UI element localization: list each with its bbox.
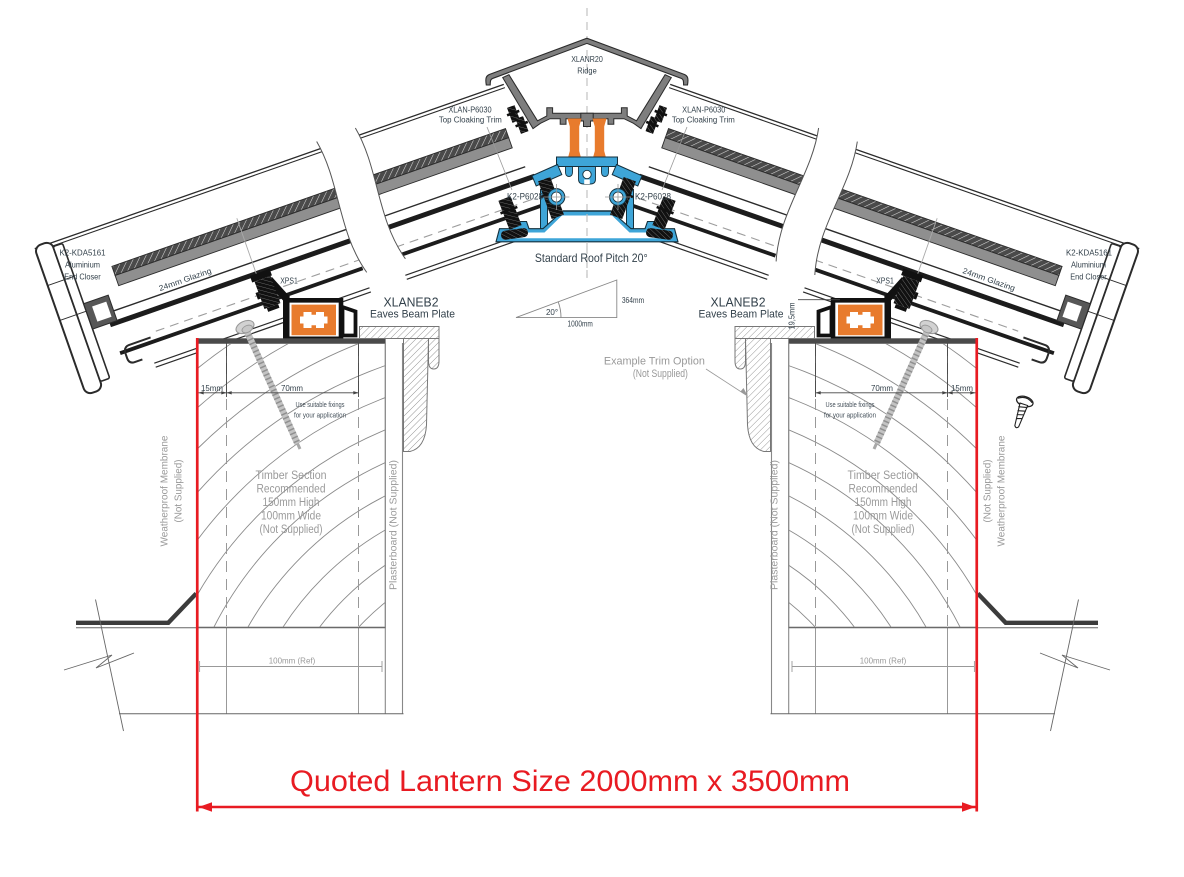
svg-text:100mm Wide: 100mm Wide: [261, 511, 321, 523]
svg-text:Eaves Beam Plate: Eaves Beam Plate: [699, 309, 784, 321]
svg-text:XLAN-P6030: XLAN-P6030: [448, 106, 492, 115]
svg-text:Aluminium: Aluminium: [65, 260, 100, 269]
svg-text:Eaves Beam Plate: Eaves Beam Plate: [370, 309, 455, 321]
svg-text:70mm: 70mm: [871, 384, 893, 393]
svg-text:K2-KDA5161: K2-KDA5161: [60, 248, 107, 257]
svg-text:Example Trim Option: Example Trim Option: [604, 356, 705, 368]
svg-text:Top Cloaking Trim: Top Cloaking Trim: [672, 116, 735, 125]
svg-text:Weatherproof Membrane: Weatherproof Membrane: [159, 435, 171, 546]
svg-text:364mm: 364mm: [622, 296, 645, 305]
svg-text:End Closer: End Closer: [1070, 273, 1107, 282]
svg-text:Aluminium: Aluminium: [1071, 261, 1106, 270]
svg-text:(Not Supplied): (Not Supplied): [852, 524, 915, 536]
svg-text:(Not Supplied): (Not Supplied): [982, 460, 994, 523]
svg-text:K2-P6028: K2-P6028: [635, 191, 671, 201]
svg-text:Recommended: Recommended: [849, 484, 918, 496]
svg-text:150mm High: 150mm High: [855, 497, 912, 509]
svg-text:XLANR20: XLANR20: [571, 55, 603, 64]
svg-text:19,5mm: 19,5mm: [788, 302, 797, 329]
svg-text:XPS1: XPS1: [876, 277, 894, 286]
svg-text:(Not Supplied): (Not Supplied): [260, 524, 323, 536]
svg-text:Timber Section: Timber Section: [848, 470, 919, 482]
svg-text:Quoted Lantern Size 2000mm x 3: Quoted Lantern Size 2000mm x 3500mm: [290, 765, 850, 798]
svg-text:1000mm: 1000mm: [568, 320, 594, 329]
svg-text:70mm: 70mm: [281, 384, 303, 393]
svg-text:(Not Supplied): (Not Supplied): [173, 460, 185, 523]
svg-text:Plasterboard (Not Supplied): Plasterboard (Not Supplied): [769, 460, 781, 590]
svg-text:15mm: 15mm: [951, 384, 973, 393]
svg-text:Timber Section: Timber Section: [256, 470, 327, 482]
svg-text:Ridge: Ridge: [577, 67, 597, 76]
svg-text:Weatherproof Membrane: Weatherproof Membrane: [996, 435, 1008, 546]
svg-text:100mm (Ref): 100mm (Ref): [269, 657, 316, 666]
svg-text:100mm (Ref): 100mm (Ref): [860, 657, 907, 666]
svg-text:20°: 20°: [546, 308, 558, 317]
svg-text:Standard Roof Pitch 20°: Standard Roof Pitch 20°: [535, 251, 648, 265]
svg-text:100mm Wide: 100mm Wide: [853, 511, 913, 523]
svg-text:XLANEB2: XLANEB2: [711, 295, 766, 310]
svg-text:Plasterboard (Not Supplied): Plasterboard (Not Supplied): [388, 460, 400, 590]
svg-text:Recommended: Recommended: [257, 484, 326, 496]
svg-text:for your application: for your application: [294, 411, 346, 420]
svg-text:K2-KDA5161: K2-KDA5161: [1066, 249, 1113, 258]
svg-text:Use suitable fixings: Use suitable fixings: [826, 400, 875, 409]
svg-text:(Not Supplied): (Not Supplied): [633, 368, 688, 380]
svg-text:Use suitable fixings: Use suitable fixings: [296, 400, 345, 409]
svg-text:15mm: 15mm: [201, 384, 223, 393]
svg-text:for your application: for your application: [824, 411, 876, 420]
svg-text:XPS1: XPS1: [280, 277, 298, 286]
svg-text:Top Cloaking Trim: Top Cloaking Trim: [439, 116, 502, 125]
svg-text:K2-P6028: K2-P6028: [507, 191, 543, 201]
svg-text:150mm High: 150mm High: [263, 497, 320, 509]
svg-text:End Closer: End Closer: [64, 272, 101, 281]
svg-text:XLAN-P6030: XLAN-P6030: [682, 106, 726, 115]
svg-text:XLANEB2: XLANEB2: [384, 295, 439, 310]
